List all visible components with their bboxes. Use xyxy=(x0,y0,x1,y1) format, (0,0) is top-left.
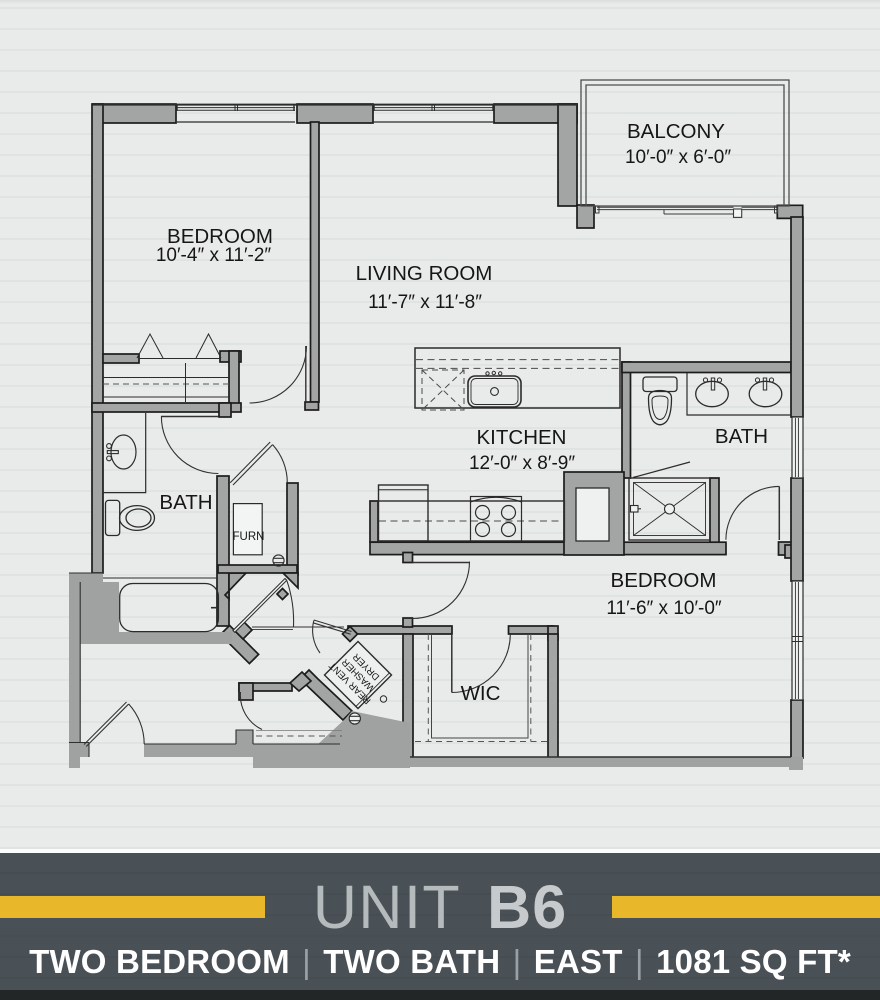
svg-text:WIC: WIC xyxy=(461,682,501,705)
svg-text:KITCHEN: KITCHEN xyxy=(477,426,567,449)
svg-text:BEDROOM: BEDROOM xyxy=(611,569,717,592)
svg-text:11′-7″ x 11′-8″: 11′-7″ x 11′-8″ xyxy=(368,292,482,313)
svg-text:10′-4″ x 11′-2″: 10′-4″ x 11′-2″ xyxy=(156,245,272,266)
svg-text:LIVING ROOM: LIVING ROOM xyxy=(356,262,493,285)
svg-text:BATH: BATH xyxy=(159,491,212,514)
svg-text:12′-0″ x 8′-9″: 12′-0″ x 8′-9″ xyxy=(469,453,575,474)
svg-text:10′-0″ x 6′-0″: 10′-0″ x 6′-0″ xyxy=(625,147,731,168)
svg-text:BATH: BATH xyxy=(715,425,768,448)
svg-text:11′-6″ x 10′-0″: 11′-6″ x 10′-0″ xyxy=(606,598,722,619)
svg-text:FURN: FURN xyxy=(233,531,265,543)
svg-text:BALCONY: BALCONY xyxy=(627,120,725,143)
